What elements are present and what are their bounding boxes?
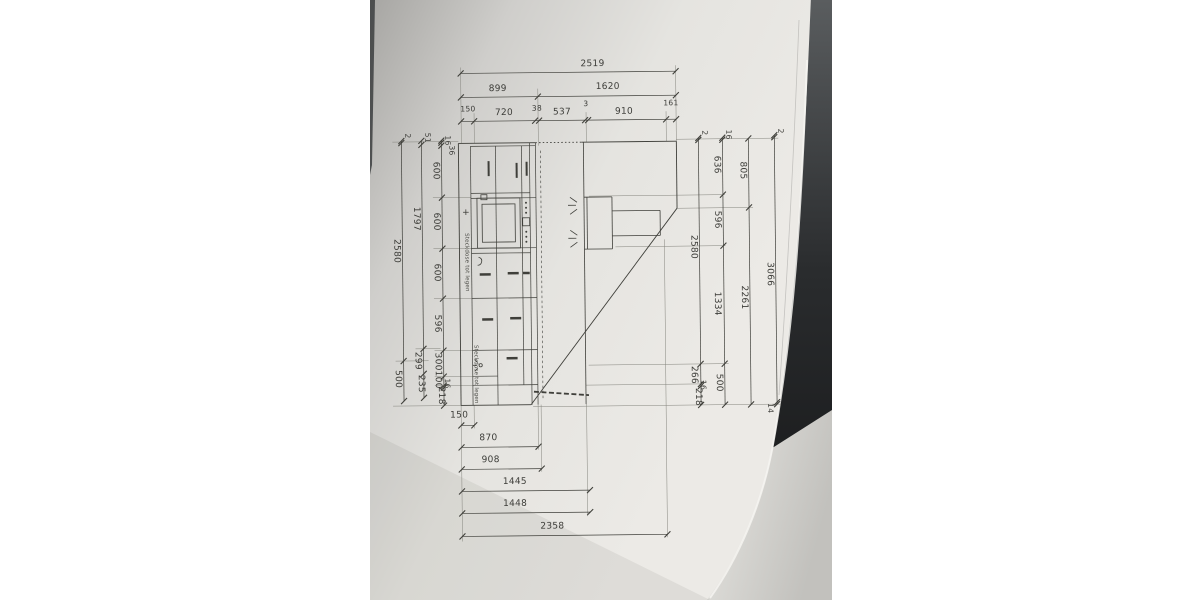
drawing-tilt-wrapper: 2519 899 1620 150 720 38 537 3 910 161 2…	[367, 0, 835, 600]
dim-label: 596	[711, 198, 723, 242]
dim-label: 2580	[687, 225, 699, 269]
dim-label: 1448	[493, 498, 537, 510]
dim-label: 500	[713, 361, 725, 405]
dim-label: 16	[722, 113, 734, 157]
dim-label: 500	[392, 357, 404, 401]
dim-label: 2519	[570, 58, 614, 70]
dim-label: 1445	[493, 476, 537, 488]
dim-label: 636	[710, 143, 722, 187]
sloped-ceiling-line	[529, 208, 679, 405]
dim-label: 870	[466, 432, 510, 444]
hook-symbol	[478, 257, 482, 265]
heavy-dashed-line	[534, 391, 589, 396]
socket-symbol	[481, 195, 487, 200]
dim-label: 899	[476, 83, 520, 95]
dim-label: 1620	[586, 81, 630, 93]
dim-label: 600	[429, 149, 441, 193]
control-knobs	[525, 202, 527, 243]
dim-label: 2358	[530, 520, 574, 532]
dim-label: 600	[430, 251, 442, 295]
control-display	[523, 218, 530, 226]
dim-label: 2	[401, 114, 413, 158]
socket-note: Steckdose tot legen	[469, 339, 482, 409]
hidden-edge-dashed	[540, 151, 543, 401]
socket-note: Steckdose tot legen	[460, 227, 473, 297]
dim-label: 2	[774, 109, 786, 153]
dim-label: 908	[469, 454, 513, 466]
dim-label: 14	[764, 386, 776, 430]
dim-label: 218	[692, 375, 704, 419]
dim-label: 2261	[738, 275, 750, 319]
light-rays	[568, 197, 578, 247]
dim-label: 2580	[390, 229, 402, 273]
dim-label: 805	[736, 148, 748, 192]
room-outline	[458, 141, 679, 405]
chimney	[612, 235, 660, 236]
dim-label: 235	[415, 362, 427, 406]
dim-label: 1334	[711, 282, 723, 326]
dim-label: 36	[445, 128, 457, 172]
dim-label: 1797	[410, 197, 422, 241]
wall-line	[583, 142, 586, 404]
dim-label: 3066	[764, 252, 776, 296]
dim-label: 600	[430, 200, 442, 244]
dim-label: 910	[602, 106, 646, 118]
photo-of-drawing: 2519 899 1620 150 720 38 537 3 910 161 2…	[370, 0, 832, 600]
dim-label: 2	[698, 111, 710, 155]
dim-label: 161	[649, 97, 693, 109]
dim-label: 150	[437, 409, 481, 421]
screenshot-canvas: 2519 899 1620 150 720 38 537 3 910 161 2…	[0, 0, 1200, 600]
